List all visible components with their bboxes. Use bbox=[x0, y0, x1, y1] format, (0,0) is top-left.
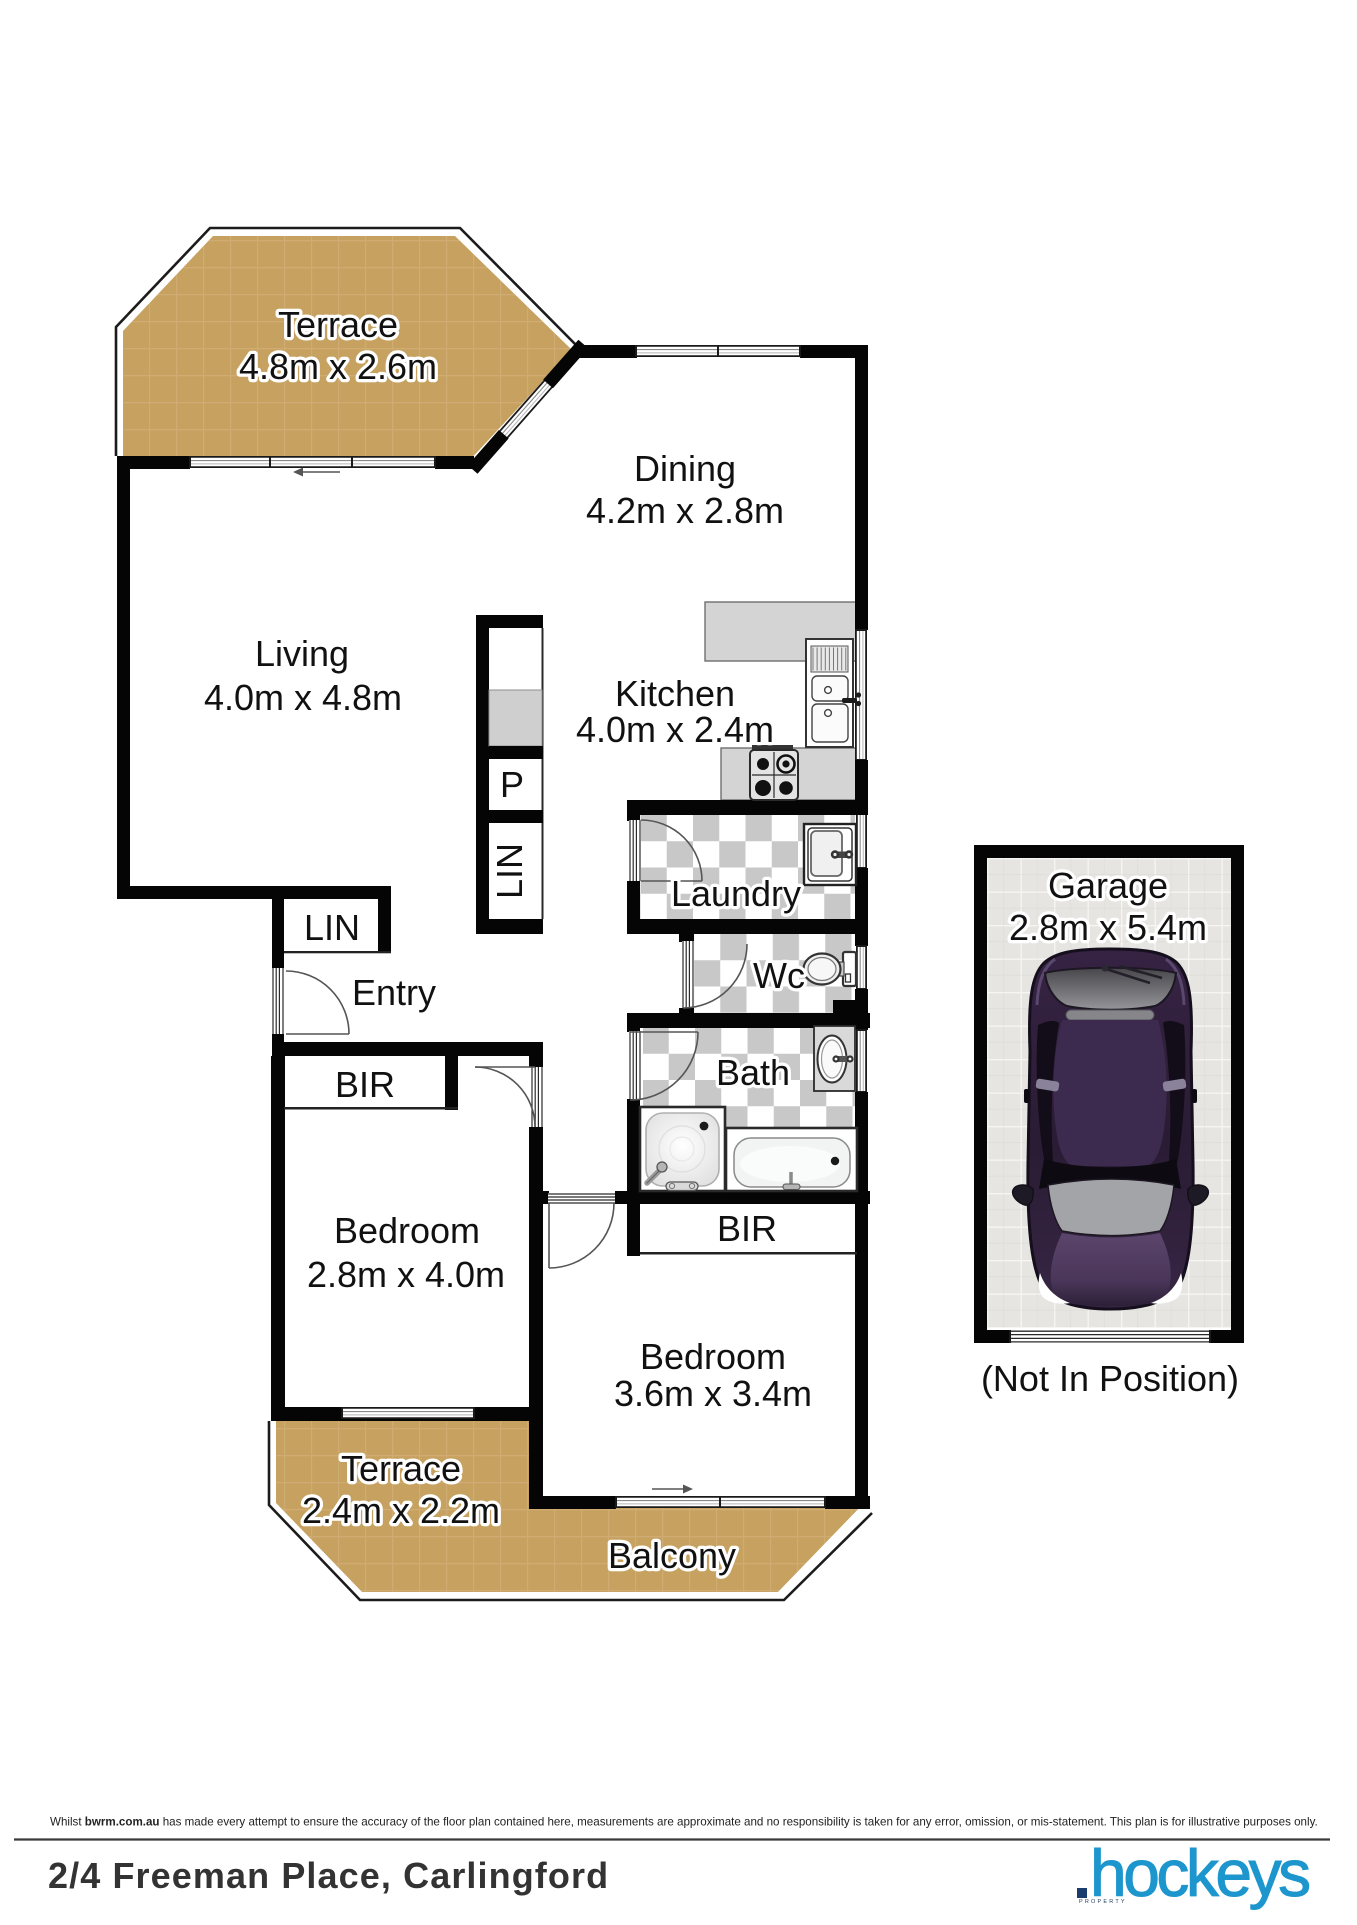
svg-text:Balcony: Balcony bbox=[608, 1535, 736, 1576]
svg-text:Laundry: Laundry bbox=[671, 873, 801, 914]
svg-text:4.0m x 4.8m: 4.0m x 4.8m bbox=[204, 677, 402, 718]
svg-text:2/4 Freeman Place, Carlingford: 2/4 Freeman Place, Carlingford bbox=[48, 1855, 609, 1896]
svg-text:P: P bbox=[500, 764, 524, 805]
svg-text:(Not In Position): (Not In Position) bbox=[981, 1358, 1239, 1399]
svg-text:2.8m x 4.0m: 2.8m x 4.0m bbox=[307, 1254, 505, 1295]
svg-text:Bath: Bath bbox=[716, 1052, 790, 1093]
svg-text:Garage: Garage bbox=[1048, 865, 1168, 906]
svg-text:Living: Living bbox=[255, 633, 349, 674]
svg-text:2.8m x 5.4m: 2.8m x 5.4m bbox=[1009, 907, 1207, 948]
svg-text:2.4m x 2.2m: 2.4m x 2.2m bbox=[302, 1490, 500, 1531]
svg-text:LIN: LIN bbox=[489, 843, 530, 899]
svg-text:PROPERTY: PROPERTY bbox=[1079, 1899, 1127, 1905]
svg-text:Bedroom: Bedroom bbox=[334, 1210, 480, 1251]
svg-text:LIN: LIN bbox=[304, 907, 360, 948]
svg-text:4.0m x 2.4m: 4.0m x 2.4m bbox=[576, 709, 774, 750]
svg-text:Bedroom: Bedroom bbox=[640, 1336, 786, 1377]
svg-text:BIR: BIR bbox=[717, 1208, 777, 1249]
svg-text:4.8m x 2.6m: 4.8m x 2.6m bbox=[239, 346, 437, 387]
svg-text:Entry: Entry bbox=[352, 972, 436, 1013]
svg-text:Dining: Dining bbox=[634, 448, 736, 489]
svg-text:Kitchen: Kitchen bbox=[615, 673, 735, 714]
svg-text:Terrace: Terrace bbox=[278, 304, 398, 345]
svg-text:3.6m x 3.4m: 3.6m x 3.4m bbox=[614, 1373, 812, 1414]
svg-text:Terrace: Terrace bbox=[341, 1448, 461, 1489]
svg-text:4.2m x 2.8m: 4.2m x 2.8m bbox=[586, 490, 784, 531]
svg-text:Whilst bwrm.com.au has made ev: Whilst bwrm.com.au has made every attemp… bbox=[50, 1816, 1318, 1829]
svg-text:Wc: Wc bbox=[753, 955, 805, 996]
svg-text:BIR: BIR bbox=[335, 1064, 395, 1105]
